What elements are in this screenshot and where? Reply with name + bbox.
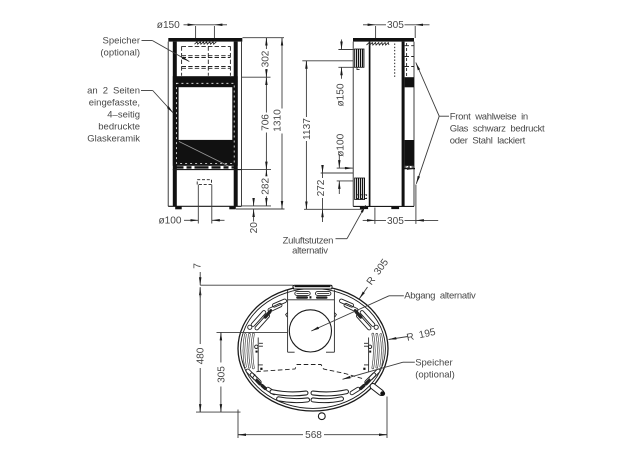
svg-text:Front wahlweise in: Front wahlweise in xyxy=(450,111,528,122)
svg-text:Abgang alternativ: Abgang alternativ xyxy=(404,291,476,302)
svg-text:20: 20 xyxy=(249,222,260,234)
svg-text:302: 302 xyxy=(260,50,271,67)
svg-text:Glaskeramik: Glaskeramik xyxy=(87,134,140,145)
svg-text:1137: 1137 xyxy=(302,118,313,140)
svg-text:480: 480 xyxy=(196,347,207,364)
svg-text:bedruckte: bedruckte xyxy=(98,122,140,133)
svg-text:1310: 1310 xyxy=(272,109,283,132)
svg-text:4–seitig: 4–seitig xyxy=(107,110,140,121)
svg-text:oder Stahl lackiert: oder Stahl lackiert xyxy=(450,135,526,146)
svg-text:(optional): (optional) xyxy=(415,369,455,380)
svg-text:305: 305 xyxy=(387,216,404,227)
svg-text:7: 7 xyxy=(192,263,203,269)
svg-text:305: 305 xyxy=(216,366,227,383)
svg-text:eingefasste,: eingefasste, xyxy=(89,98,140,109)
svg-text:alternativ: alternativ xyxy=(292,245,328,256)
svg-text:an 2 Seiten: an 2 Seiten xyxy=(87,86,140,97)
svg-text:ø150: ø150 xyxy=(157,20,180,31)
svg-text:706: 706 xyxy=(260,114,271,131)
svg-text:Speicher: Speicher xyxy=(103,35,141,46)
svg-text:272: 272 xyxy=(316,179,327,196)
svg-text:Speicher: Speicher xyxy=(415,357,453,368)
svg-text:ø100: ø100 xyxy=(335,133,346,156)
svg-text:ø150: ø150 xyxy=(335,83,346,106)
svg-text:ø100: ø100 xyxy=(158,216,181,227)
svg-text:305: 305 xyxy=(387,20,404,31)
svg-text:282: 282 xyxy=(260,177,271,194)
svg-text:(optional): (optional) xyxy=(100,47,140,58)
svg-text:Glas schwarz bedruckt: Glas schwarz bedruckt xyxy=(450,123,545,134)
svg-text:568: 568 xyxy=(305,430,322,441)
